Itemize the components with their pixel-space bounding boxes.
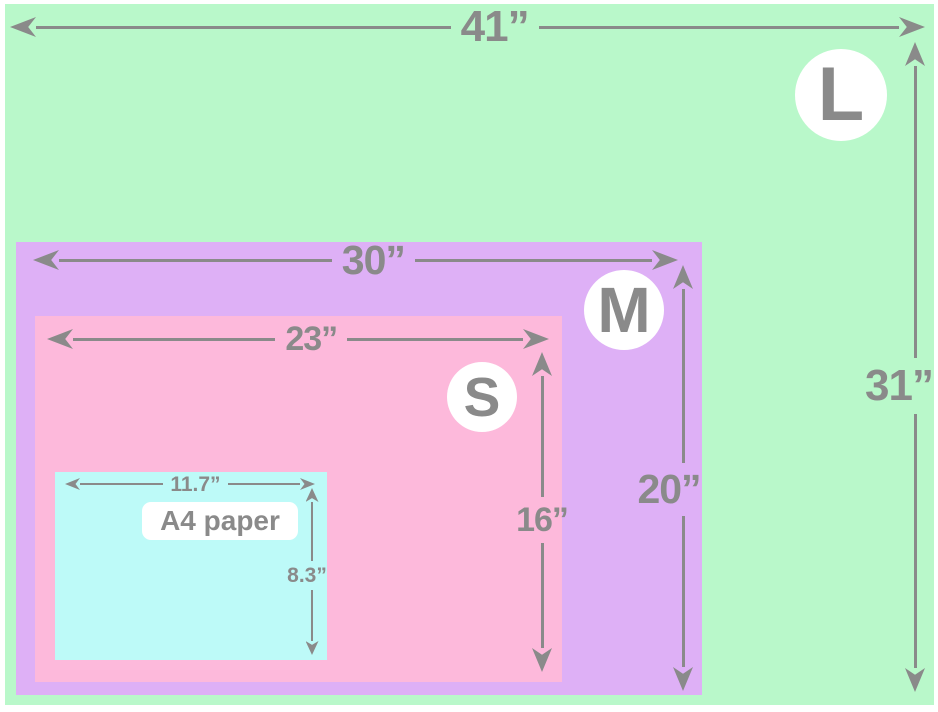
arrow-left-icon bbox=[10, 17, 36, 37]
dimension-arrow-a4-width: 11.7” bbox=[65, 472, 315, 496]
dimension-arrow-m-width: 30” bbox=[33, 240, 678, 280]
arrow-up-icon bbox=[532, 352, 552, 376]
size-badge-s: S bbox=[447, 362, 517, 432]
arrow-line bbox=[311, 502, 313, 561]
arrow-line bbox=[228, 483, 300, 485]
dimension-arrow-l-width: 41” bbox=[10, 5, 925, 49]
arrow-up-icon bbox=[905, 42, 925, 66]
arrow-line bbox=[36, 26, 451, 29]
dimension-arrow-s-width: 23” bbox=[47, 319, 549, 359]
arrow-line bbox=[682, 289, 685, 463]
dimension-arrow-m-height: 20” bbox=[668, 265, 698, 691]
dimension-label-a4-width: 11.7” bbox=[170, 474, 220, 495]
size-letter-m: M bbox=[597, 278, 650, 342]
arrow-line bbox=[415, 259, 652, 262]
dimension-label-l-width: 41” bbox=[461, 5, 529, 49]
arrow-right-icon bbox=[523, 329, 549, 349]
dimension-label-s-height: 16” bbox=[516, 503, 568, 537]
arrow-line bbox=[541, 376, 544, 497]
size-letter-s: S bbox=[464, 370, 501, 425]
size-badge-l: L bbox=[795, 49, 887, 141]
dimension-label-l-height: 31” bbox=[865, 364, 933, 408]
arrow-down-icon bbox=[532, 648, 552, 672]
arrow-left-icon bbox=[65, 478, 80, 490]
arrow-down-icon bbox=[673, 667, 693, 691]
arrow-line bbox=[682, 516, 685, 667]
arrow-up-icon bbox=[306, 488, 319, 502]
dimension-arrow-a4-height: 8.3” bbox=[297, 488, 327, 655]
arrow-down-icon bbox=[306, 641, 319, 655]
arrow-up-icon bbox=[673, 265, 693, 289]
arrow-line bbox=[539, 26, 899, 29]
size-letter-l: L bbox=[818, 57, 864, 133]
dimension-label-s-width: 23” bbox=[285, 322, 337, 356]
poster-size-comparison-diagram: 41” 31” 30” 20” 23” 16” bbox=[0, 0, 938, 712]
dimension-arrow-s-height: 16” bbox=[527, 352, 557, 672]
arrow-line bbox=[73, 338, 275, 341]
arrow-line bbox=[914, 414, 917, 668]
arrow-line bbox=[311, 590, 313, 641]
arrow-left-icon bbox=[33, 250, 59, 270]
dimension-arrow-l-height: 31” bbox=[900, 42, 930, 692]
arrow-line bbox=[347, 338, 523, 341]
arrow-line bbox=[59, 259, 332, 262]
arrow-line bbox=[914, 66, 917, 358]
arrow-down-icon bbox=[905, 668, 925, 692]
arrow-right-icon bbox=[899, 17, 925, 37]
arrow-left-icon bbox=[47, 329, 73, 349]
dimension-label-m-height: 20” bbox=[637, 469, 700, 510]
dimension-label-a4-height: 8.3” bbox=[287, 565, 327, 586]
dimension-label-m-width: 30” bbox=[342, 240, 405, 281]
a4-paper-label: A4 paper bbox=[142, 502, 298, 540]
size-badge-m: M bbox=[584, 270, 664, 350]
a4-paper-label-text: A4 paper bbox=[160, 505, 280, 537]
arrow-line bbox=[541, 543, 544, 648]
arrow-line bbox=[80, 483, 163, 485]
